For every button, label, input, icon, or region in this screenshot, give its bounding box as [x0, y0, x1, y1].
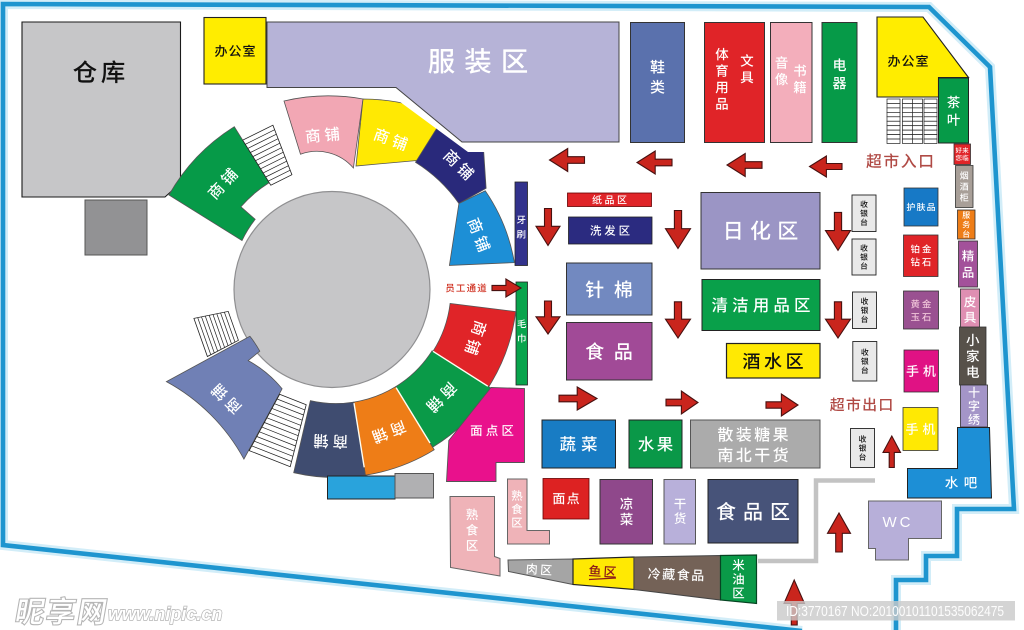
- svg-text:ID:3770167 NO:2010010110153506: ID:3770167 NO:20100101101535062475: [786, 604, 1004, 620]
- svg-text:WC: WC: [883, 514, 914, 531]
- svg-text:www.nipic.cn: www.nipic.cn: [108, 604, 222, 624]
